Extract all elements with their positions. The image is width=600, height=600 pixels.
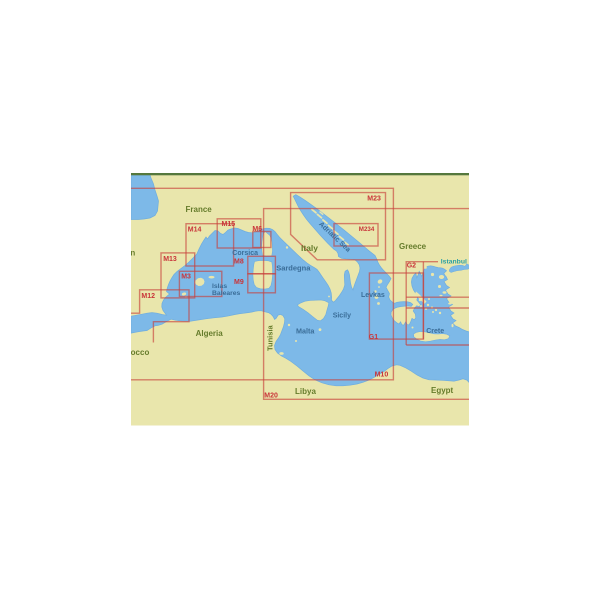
svg-text:G1: G1 [369,334,378,341]
svg-text:M13: M13 [163,256,177,263]
svg-text:M15: M15 [222,221,236,228]
svg-text:Malta: Malta [296,326,315,335]
svg-text:Crete: Crete [426,328,444,335]
svg-text:Spain: Spain [114,249,136,258]
svg-text:M234: M234 [359,226,375,233]
svg-text:France: France [186,205,213,214]
svg-text:Islas: Islas [212,283,227,290]
svg-text:M6: M6 [252,226,262,233]
svg-text:M8: M8 [234,259,244,266]
svg-text:Italy: Italy [301,243,318,253]
svg-text:M9: M9 [234,279,244,286]
svg-text:G2: G2 [407,263,416,270]
svg-text:Tunisia: Tunisia [266,324,275,351]
svg-text:Greece: Greece [399,242,427,251]
svg-text:M3: M3 [181,273,191,280]
svg-text:M20: M20 [264,393,278,400]
svg-text:Libya: Libya [295,387,316,396]
svg-text:Egypt: Egypt [431,386,454,395]
svg-text:M23: M23 [367,195,381,202]
svg-text:Baleares: Baleares [212,290,241,297]
svg-text:M14: M14 [188,227,202,234]
svg-text:Levkas: Levkas [361,292,385,299]
svg-text:M10: M10 [375,372,389,379]
svg-text:Sicily: Sicily [333,312,351,319]
svg-text:Sardegna: Sardegna [276,264,311,273]
svg-text:Morocco: Morocco [116,348,149,357]
svg-text:Corsica: Corsica [232,250,258,257]
svg-text:Istanbul: Istanbul [441,258,467,265]
svg-text:Algeria: Algeria [196,329,224,338]
svg-text:M12: M12 [141,293,155,300]
